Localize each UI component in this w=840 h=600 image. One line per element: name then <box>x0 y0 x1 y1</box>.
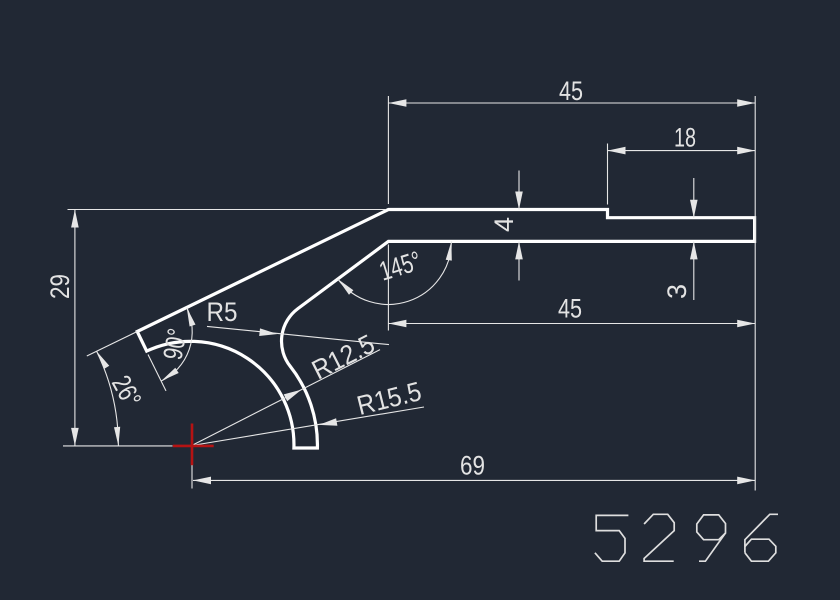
svg-text:18: 18 <box>674 123 696 153</box>
svg-text:45: 45 <box>559 76 583 106</box>
svg-text:26°: 26° <box>106 370 147 412</box>
svg-text:R15.5: R15.5 <box>354 376 424 421</box>
svg-text:4: 4 <box>489 217 519 232</box>
svg-text:145°: 145° <box>376 246 425 287</box>
svg-text:45: 45 <box>558 294 582 324</box>
svg-text:R5: R5 <box>207 297 238 327</box>
svg-text:90°: 90° <box>158 326 193 362</box>
svg-text:29: 29 <box>45 274 75 299</box>
svg-text:69: 69 <box>460 451 485 481</box>
svg-text:3: 3 <box>662 284 692 299</box>
